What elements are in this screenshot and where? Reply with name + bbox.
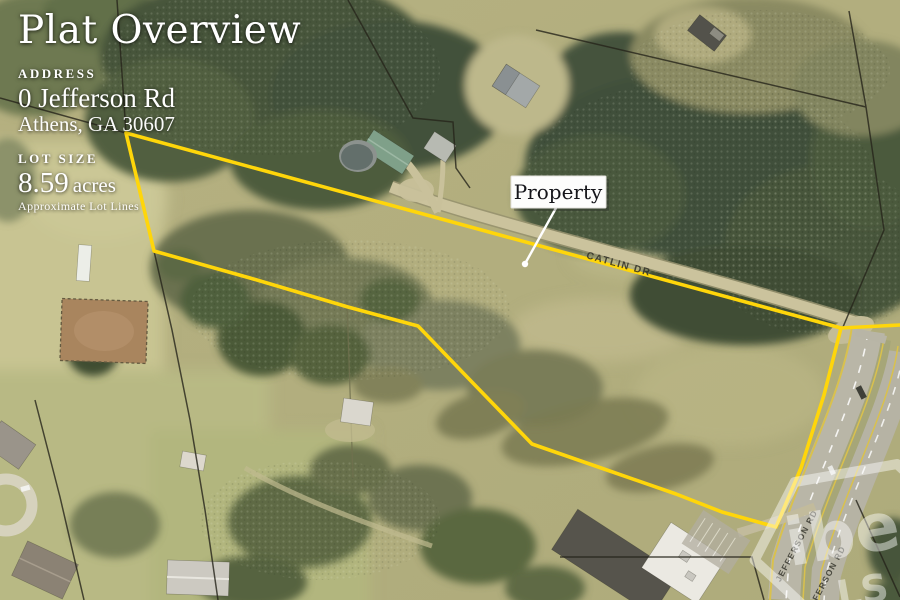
callout-marker-dot [522,261,528,267]
pond [339,140,377,172]
address-label: ADDRESS [18,66,301,82]
page-title: Plat Overview [18,10,301,53]
address-line2: Athens, GA 30607 [18,112,301,136]
lot-size-value-row: 8.59 acres [18,168,301,198]
lot-size-unit: acres [73,173,116,197]
plat-overview-screenshot: CATLIN DR JEFFERSON RD JEFFERSON RD ibe … [0,0,900,600]
address-line1: 0 Jefferson Rd [18,84,301,112]
info-overlay: Plat Overview ADDRESS 0 Jefferson Rd Ath… [18,10,301,214]
lot-size-label: LOT SIZE [18,151,301,167]
callout-label: Property [514,180,603,204]
dirt-paddock [60,299,148,364]
lot-size-value: 8.59 [18,167,69,199]
lot-size-note: Approximate Lot Lines [18,199,301,215]
